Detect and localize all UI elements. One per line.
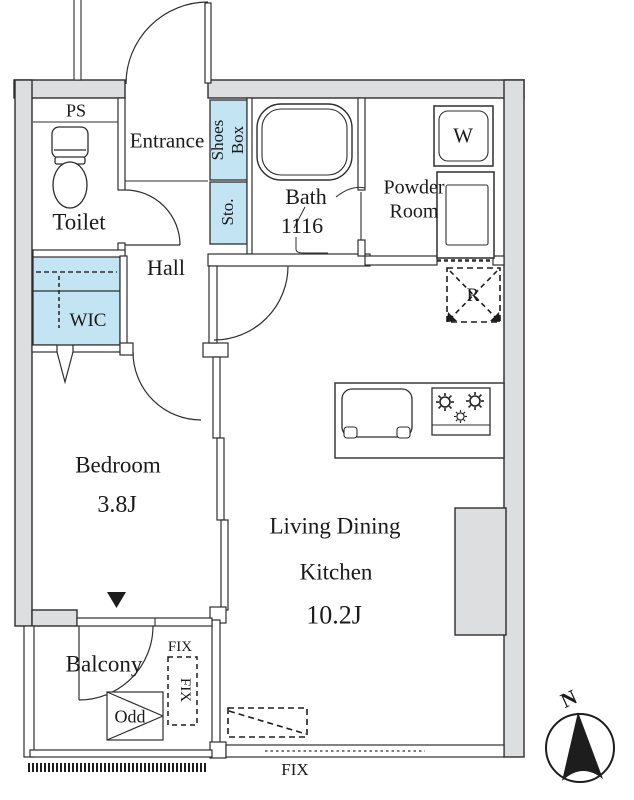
balcony-window bbox=[77, 618, 212, 626]
label-ldk-line1: Living Dining bbox=[270, 512, 401, 539]
label-fix-top: FIX bbox=[168, 639, 192, 657]
bedroom-door-swing bbox=[133, 352, 201, 420]
hall-ldk-door-swing bbox=[214, 266, 288, 340]
toilet-icon bbox=[52, 127, 88, 208]
label-entrance: Entrance bbox=[130, 129, 205, 154]
label-shoes-box: Shoes Box bbox=[208, 120, 248, 161]
label-powder-line1: Powder bbox=[383, 176, 444, 200]
label-ps: PS bbox=[66, 100, 86, 121]
label-bedroom-size: 3.8J bbox=[97, 491, 136, 519]
neighbor-wall bbox=[74, 0, 81, 80]
label-fix-bottom: FIX bbox=[281, 760, 308, 780]
label-powder-line2: Room bbox=[383, 200, 444, 224]
label-balcony: Balcony bbox=[66, 650, 143, 677]
compass-icon bbox=[546, 712, 614, 782]
label-ldk-line2: Kitchen bbox=[300, 558, 373, 585]
entrance-door-leaf bbox=[205, 3, 211, 83]
balcony-side-rail bbox=[24, 626, 34, 757]
bathtub-icon bbox=[257, 104, 352, 180]
toilet-door-swing bbox=[125, 190, 180, 245]
floor-plan-drawing bbox=[0, 0, 634, 800]
windows bbox=[24, 618, 504, 757]
floor-plan: PS Toilet Entrance Shoes Box Sto. Bath 1… bbox=[0, 0, 634, 800]
label-washer: W bbox=[453, 124, 473, 149]
balcony-bottom-rail bbox=[30, 750, 212, 757]
label-storage: Sto. bbox=[218, 199, 238, 226]
label-bedroom: Bedroom bbox=[75, 451, 161, 478]
label-toilet: Toilet bbox=[52, 208, 105, 235]
wic-folding-door bbox=[57, 352, 73, 382]
vanity-icon bbox=[437, 172, 494, 258]
label-refrigerator: R bbox=[467, 285, 480, 307]
furniture-dashed-box bbox=[228, 708, 307, 737]
label-powder-room: Powder Room bbox=[383, 176, 444, 223]
label-wic: WIC bbox=[70, 310, 107, 332]
label-shoes-box-line2: Box bbox=[228, 120, 248, 161]
direction-triangle bbox=[107, 592, 126, 608]
label-shoes-box-line1: Shoes bbox=[208, 120, 228, 161]
label-bath: Bath bbox=[285, 184, 327, 210]
label-odd: Odd bbox=[115, 706, 146, 727]
entrance-door-swing bbox=[126, 2, 208, 84]
label-ldk-size: 10.2J bbox=[306, 601, 362, 632]
kitchen-counter bbox=[335, 383, 504, 458]
label-bath-size: 1116 bbox=[281, 213, 323, 239]
label-fix-side: FIX bbox=[175, 678, 193, 702]
label-hall: Hall bbox=[147, 255, 185, 281]
